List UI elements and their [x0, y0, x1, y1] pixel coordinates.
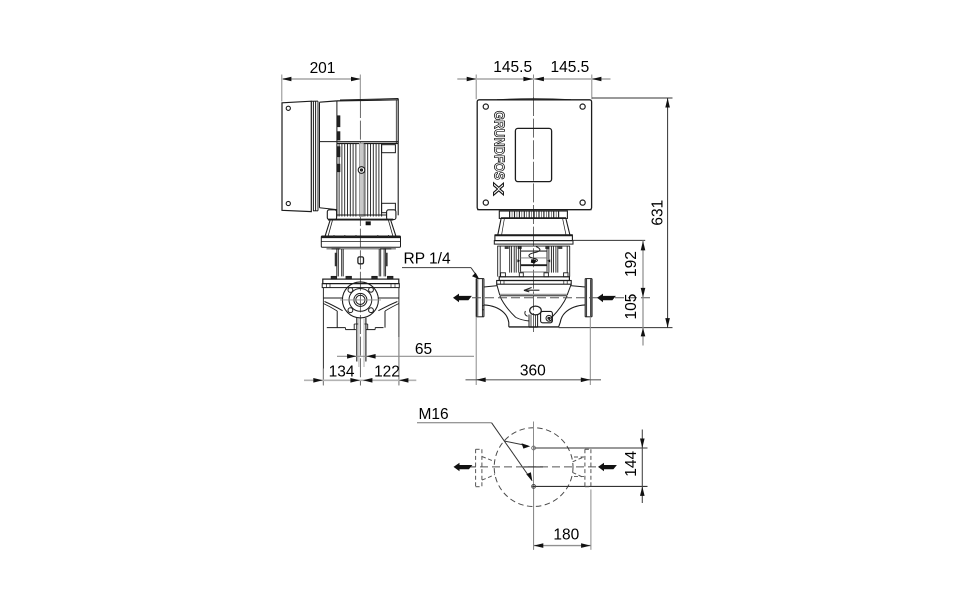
- svg-text:144: 144: [623, 450, 640, 476]
- svg-text:201: 201: [310, 60, 336, 77]
- svg-text:631: 631: [650, 200, 667, 226]
- svg-text:145.5: 145.5: [551, 59, 590, 76]
- svg-text:134: 134: [329, 364, 355, 381]
- svg-text:192: 192: [623, 251, 640, 277]
- svg-text:360: 360: [520, 362, 546, 379]
- svg-text:X: X: [490, 183, 507, 196]
- svg-text:GRUNDFOS: GRUNDFOS: [491, 111, 507, 180]
- svg-text:122: 122: [374, 364, 400, 381]
- svg-text:145.5: 145.5: [493, 59, 532, 76]
- svg-text:65: 65: [415, 341, 432, 358]
- svg-text:RP 1/4: RP 1/4: [404, 250, 451, 267]
- svg-text:180: 180: [553, 527, 579, 544]
- svg-text:M16: M16: [419, 406, 449, 423]
- svg-text:105: 105: [623, 294, 640, 320]
